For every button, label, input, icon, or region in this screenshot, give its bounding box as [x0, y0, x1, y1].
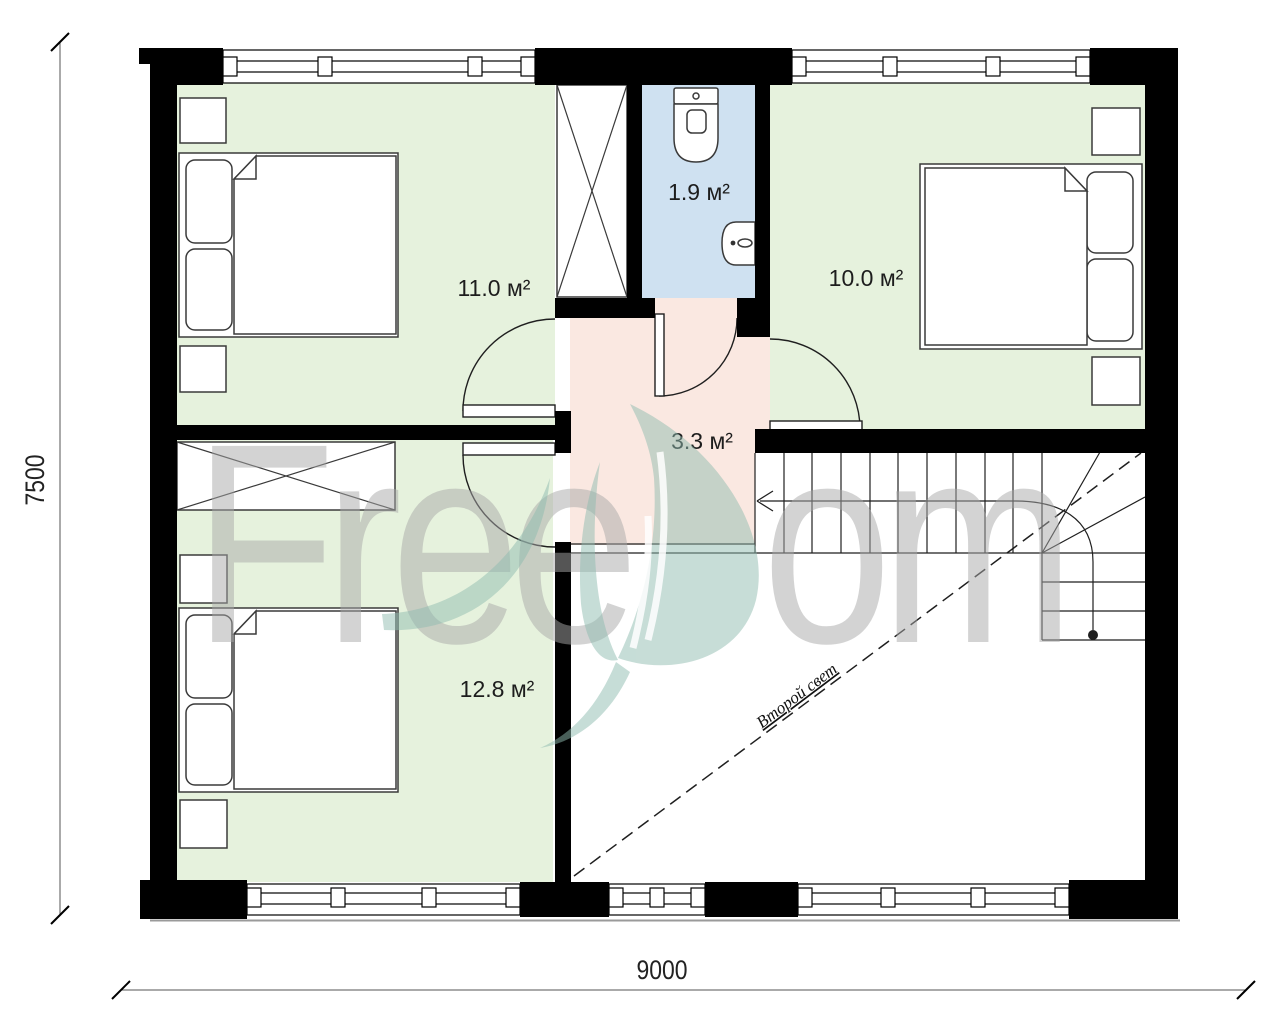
blanket	[925, 168, 1087, 345]
wall-top-middle	[535, 48, 792, 85]
nightstand	[1092, 108, 1140, 155]
area-label-bedroom-top-left: 11.0 м²	[458, 275, 531, 301]
pillow	[186, 249, 232, 330]
floor-plan-canvas: 11.0 м² 1.9 м² 10.0 м² 3.3 м² 12.8 м² Вт…	[0, 0, 1267, 1034]
dimension-label-bottom: 9000	[636, 955, 687, 985]
wall-hallway-top	[555, 298, 655, 318]
wall-left	[150, 48, 177, 882]
sink-drain	[731, 241, 736, 246]
wall-top-right-corner	[1090, 48, 1145, 85]
wall-right	[1145, 48, 1178, 882]
floor-plan-drawing: 11.0 м² 1.9 м² 10.0 м² 3.3 м² 12.8 м² Вт…	[0, 0, 1267, 1034]
pillow	[186, 160, 232, 243]
window	[247, 884, 520, 915]
bathroom-door-gap	[655, 298, 737, 318]
pillow	[1087, 259, 1133, 341]
wall-bottom-pier	[520, 882, 609, 917]
wall-bottom-left-corner	[140, 880, 247, 919]
watermark-text-left: Free	[193, 385, 630, 703]
nightstand	[1092, 357, 1140, 405]
area-label-bathroom: 1.9 м²	[668, 179, 730, 205]
nightstand	[180, 98, 226, 143]
window	[798, 884, 1069, 915]
wall-bottom-right-corner	[1069, 880, 1178, 919]
walk-line-start-dot	[1088, 630, 1098, 640]
nightstand	[180, 800, 227, 848]
toilet	[674, 88, 718, 162]
wall-bottom-pier	[705, 882, 798, 917]
pillow	[186, 704, 232, 785]
wardrobe-shaft	[557, 85, 627, 297]
area-label-bedroom-top-right: 10.0 м²	[829, 265, 904, 291]
blanket	[234, 156, 396, 334]
window	[609, 884, 705, 915]
dimension-label-left: 7500	[20, 454, 50, 505]
window	[223, 50, 535, 83]
watermark-text-right: om	[762, 385, 1064, 703]
wall-door-stub	[737, 298, 770, 337]
window	[792, 50, 1090, 83]
pillow	[1087, 172, 1133, 253]
wall-bathroom-left	[627, 83, 642, 298]
sink	[722, 222, 755, 265]
